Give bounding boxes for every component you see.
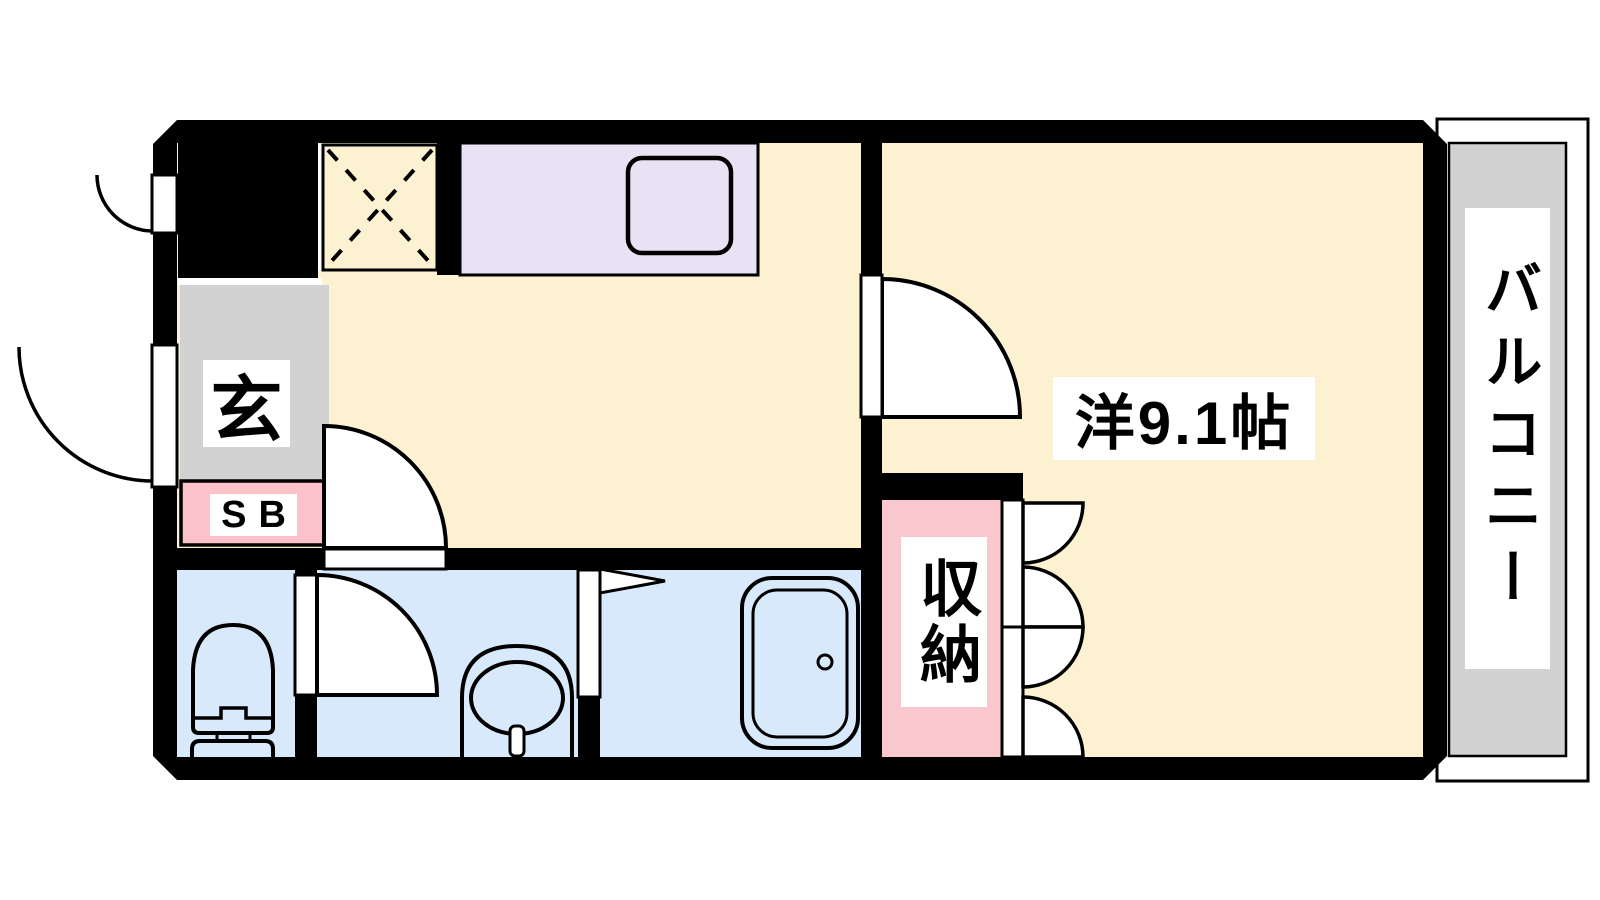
kitchen-wall-stub: [437, 143, 460, 275]
wall-wet-area-top: [177, 548, 882, 570]
shoe-box-label: SB: [210, 494, 297, 536]
wall-storage-top: [882, 473, 1023, 500]
kitchen-sink: [628, 158, 731, 253]
entrance-label: 玄: [203, 360, 290, 447]
floor-plan-page: 玄 SB 洋9.1帖 収納 バルコニー: [0, 0, 1600, 900]
toilet-doorway: [295, 575, 317, 695]
bathroom-floor: [600, 570, 861, 757]
entrance-door-leaf: [152, 345, 177, 487]
balcony-label: バルコニー: [1465, 208, 1550, 669]
western-room-label: 洋9.1帖: [1053, 377, 1315, 460]
bathroom-doorway: [578, 570, 600, 697]
kitchen-band: [178, 143, 758, 285]
service-door-leaf: [152, 175, 177, 233]
washbasin-tap: [510, 726, 524, 756]
room-doorway: [861, 275, 882, 417]
pipe-space: [178, 143, 318, 278]
storage-label: 収納: [901, 537, 987, 707]
entrance-door-swing: [19, 347, 153, 481]
wall-corridor-room: [861, 143, 882, 757]
hall-doorway: [324, 549, 446, 569]
pipe-space-gap-bottom: [178, 278, 322, 285]
service-door-swing: [97, 175, 153, 231]
